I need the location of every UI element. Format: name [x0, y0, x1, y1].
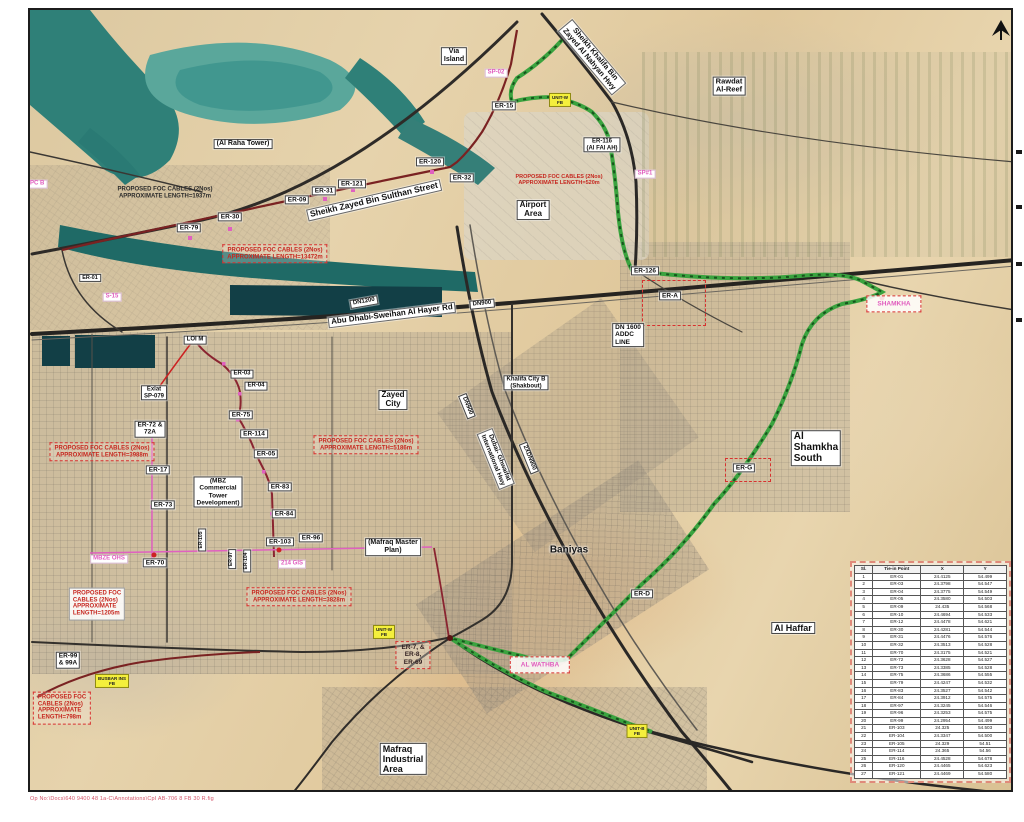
label-mafraq-master-plan: (Mafraq Master Plan): [365, 538, 421, 556]
table-cell: 5: [855, 603, 873, 611]
table-cell: 24.325: [921, 725, 964, 733]
callout-foc-1205: PROPOSED FOC CABLES (2Nos) APPROXIMATE L…: [69, 588, 125, 621]
table-cell: 24.4125: [921, 573, 964, 581]
table-cell: ER-03: [873, 581, 921, 589]
table-cell: ER-96: [873, 710, 921, 718]
table-row: 6ER-1024.469454.533: [855, 611, 1007, 619]
table-cell: 54.533: [964, 611, 1007, 619]
label-s-15: S-15: [103, 293, 122, 302]
label-al-wathba: AL WATHBA: [510, 656, 570, 673]
label-khalifa-city-b: Khalifa City B (Shakbout): [503, 375, 548, 390]
table-cell: 24.3798: [921, 581, 964, 589]
table-cell: 54.503: [964, 596, 1007, 604]
table-cell: 13: [855, 664, 873, 672]
table-row: 27ER-12124.446954.580: [855, 771, 1007, 779]
table-cell: 1: [855, 573, 873, 581]
label-er-09: ER-09: [285, 195, 309, 204]
label-er-75: ER-75: [229, 410, 253, 419]
table-row: 9ER-3124.447654.576: [855, 634, 1007, 642]
label-al-haffar: Al Haffar: [771, 622, 815, 634]
label-er-126: ER-126: [631, 266, 659, 275]
table-row: 4ER-0524.358054.503: [855, 596, 1007, 604]
label-loi-m: LOI M: [184, 336, 207, 345]
tie-in-point-markers: [150, 70, 885, 641]
table-row: 23ER-10524.32954.51: [855, 740, 1007, 748]
table-cell: ER-97: [873, 702, 921, 710]
label-dn1600-addc: DN 1600 ADDC LINE: [612, 323, 644, 347]
table-row: 19ER-9624.325354.575: [855, 710, 1007, 718]
table-cell: 54.56: [964, 748, 1007, 756]
table-row: 10ER-3224.351354.528: [855, 641, 1007, 649]
label-upc-b: UPC B: [28, 180, 47, 189]
label-rawdat-al-reef: Rawdat Al-Reef: [713, 77, 746, 96]
table-cell: 10: [855, 641, 873, 649]
table-cell: 24.4528: [921, 755, 964, 763]
table-cell: 6: [855, 611, 873, 619]
label-er-99: ER-99 & 99A: [56, 652, 80, 669]
table-row: 11ER-7024.317554.521: [855, 649, 1007, 657]
tie-in-point-table: Sl.Tie-in PointXY 1ER-0124.412554.4992ER…: [850, 561, 1011, 783]
satellite-map: ER-15ER-116 (Al FAl AH)ER-120ER-121ER-32…: [28, 8, 1013, 792]
table-cell: 12: [855, 657, 873, 665]
table-cell: 9: [855, 634, 873, 642]
label-exlat-sp079: Exlat SP-079: [141, 385, 167, 400]
table-cell: 8: [855, 626, 873, 634]
margin-tick: [1016, 150, 1022, 154]
table-cell: 54.568: [964, 603, 1007, 611]
callout-foc-3988: PROPOSED FOC CABLES (2Nos) APPROXIMATE L…: [49, 442, 154, 461]
label-sp-1: SP#1: [635, 170, 656, 179]
label-er-70: ER-70: [143, 558, 167, 567]
table-row: 25ER-11624.452854.678: [855, 755, 1007, 763]
label-er-72: ER-72 & 72A: [135, 421, 166, 438]
label-mbze-ohs: MBZE OHS: [90, 555, 128, 564]
table-header-1: Tie-in Point: [873, 566, 921, 574]
table-cell: 17: [855, 695, 873, 703]
margin-tick: [1016, 318, 1022, 322]
label-er-97: ER-97: [228, 549, 236, 569]
label-er-d: ER-D: [631, 589, 653, 598]
table-row: 14ER-7524.368654.555: [855, 672, 1007, 680]
table-cell: ER-05: [873, 596, 921, 604]
label-er-30: ER-30: [218, 212, 242, 221]
table-header-2: X: [921, 566, 964, 574]
label-er-104: ER-104: [243, 550, 251, 573]
label-er-114: ER-114: [240, 429, 268, 438]
table-cell: 54.580: [964, 771, 1007, 779]
table-cell: 54.555: [964, 672, 1007, 680]
label-er-a: ER-A: [659, 291, 681, 300]
label-er-32: ER-32: [450, 173, 474, 182]
callout-foc-13472: PROPOSED FOC CABLES (2Nos) APPROXIMATE L…: [222, 244, 327, 263]
map-sheet: ER-15ER-116 (Al FAl AH)ER-120ER-121ER-32…: [0, 0, 1024, 822]
table-cell: 54.621: [964, 619, 1007, 627]
table-cell: 24.3686: [921, 672, 964, 680]
label-er-05: ER-05: [254, 449, 278, 458]
table-row: 21ER-10324.32554.503: [855, 725, 1007, 733]
label-shamkha: SHAMKHA: [866, 295, 921, 312]
label-via-island: Via Island: [441, 47, 467, 65]
table-cell: 24.4247: [921, 679, 964, 687]
highlight-zone-er-a: [642, 280, 706, 326]
callout-er7-group: ER-7, & ER-8, ER-69: [395, 641, 430, 669]
table-cell: 24.3527: [921, 687, 964, 695]
label-mafraq-industrial: Mafraq Industrial Area: [380, 743, 427, 775]
table-cell: ER-72: [873, 657, 921, 665]
label-er-121: ER-121: [338, 179, 366, 188]
table-cell: 24.3245: [921, 702, 964, 710]
table-cell: 24.365: [921, 748, 964, 756]
label-er-120: ER-120: [416, 157, 444, 166]
table-row: 5ER-0924.43554.568: [855, 603, 1007, 611]
table-cell: 24.3175: [921, 649, 964, 657]
table-cell: 14: [855, 672, 873, 680]
table-cell: 54.546: [964, 702, 1007, 710]
label-er-15: ER-15: [492, 101, 516, 110]
table-cell: ER-04: [873, 588, 921, 596]
table-cell: 24: [855, 748, 873, 756]
table-cell: 24.3628: [921, 657, 964, 665]
table-cell: 4: [855, 596, 873, 604]
table-cell: 24.3347: [921, 733, 964, 741]
table-cell: ER-31: [873, 634, 921, 642]
table-cell: 27: [855, 771, 873, 779]
table-cell: 24.3580: [921, 596, 964, 604]
table-cell: 54.532: [964, 679, 1007, 687]
table-cell: ER-83: [873, 687, 921, 695]
table-cell: 24.4478: [921, 619, 964, 627]
table-cell: 24.329: [921, 740, 964, 748]
table-cell: ER-103: [873, 725, 921, 733]
table-cell: ER-75: [873, 672, 921, 680]
table-header-0: Sl.: [855, 566, 873, 574]
table-cell: 24.4694: [921, 611, 964, 619]
table-cell: 21: [855, 725, 873, 733]
table-cell: 54.575: [964, 695, 1007, 703]
table-cell: ER-01: [873, 573, 921, 581]
table-cell: 54.528: [964, 641, 1007, 649]
label-er-84: ER-84: [272, 509, 296, 518]
table-cell: 24.2954: [921, 717, 964, 725]
table-cell: 24.3912: [921, 695, 964, 703]
label-er-83: ER-83: [268, 482, 292, 491]
table-cell: ER-73: [873, 664, 921, 672]
table-cell: 24.3253: [921, 710, 964, 718]
north-arrow-icon: [992, 20, 1010, 40]
label-er-04: ER-04: [244, 382, 267, 391]
margin-tick: [1016, 205, 1022, 209]
table-cell: 24.3385: [921, 664, 964, 672]
table-cell: ER-105: [873, 740, 921, 748]
table-row: 24ER-11424.36554.56: [855, 748, 1007, 756]
table-cell: ER-79: [873, 679, 921, 687]
label-er-01: ER-01: [79, 274, 101, 282]
table-row: 2ER-0324.379854.547: [855, 581, 1007, 589]
label-er-03: ER-03: [230, 370, 253, 379]
table-cell: 24.4476: [921, 634, 964, 642]
label-er-g: ER-G: [733, 463, 755, 472]
table-cell: 54.623: [964, 763, 1007, 771]
label-er-105: ER-105: [198, 529, 206, 552]
table-cell: ER-32: [873, 641, 921, 649]
callout-foc-3828: PROPOSED FOC CABLES (2Nos) APPROXIMATE L…: [246, 587, 351, 606]
table-row: 17ER-8424.391254.575: [855, 695, 1007, 703]
table-cell: 54.575: [964, 710, 1007, 718]
callout-foc-798: PROPOSED FOC CABLES (2Nos) APPROXIMATE L…: [33, 692, 91, 725]
label-al-raha-tower: (Al Raha Tower): [214, 139, 273, 149]
table-row: 26ER-12024.446554.623: [855, 763, 1007, 771]
table-cell: ER-120: [873, 763, 921, 771]
label-er-103: ER-103: [266, 537, 294, 546]
table-cell: 20: [855, 717, 873, 725]
table-cell: ER-99: [873, 717, 921, 725]
table-cell: 54.499: [964, 717, 1007, 725]
label-er-79: ER-79: [177, 223, 201, 232]
table-header-3: Y: [964, 566, 1007, 574]
table-cell: 3: [855, 588, 873, 596]
label-airport-area: Airport Area: [517, 200, 550, 220]
table-cell: 54.51: [964, 740, 1007, 748]
table-cell: ER-70: [873, 649, 921, 657]
table-row: 1ER-0124.412554.499: [855, 573, 1007, 581]
table-cell: ER-09: [873, 603, 921, 611]
label-mbz-commercial: (MBZ Commercial Tower Development): [194, 476, 243, 507]
callout-foc-520: PROPOSED FOC CABLES (2Nos) APPROXIMATE L…: [515, 174, 602, 186]
table-cell: 54.521: [964, 649, 1007, 657]
label-unit-b: UNIT-B FB: [627, 724, 648, 738]
table-cell: 24.3775: [921, 588, 964, 596]
callout-foc-5186: PROPOSED FOC CABLES (2Nos) APPROXIMATE L…: [313, 435, 418, 454]
table-cell: 54.547: [964, 581, 1007, 589]
table-cell: 24.3513: [921, 641, 964, 649]
table-cell: ER-104: [873, 733, 921, 741]
table-cell: ER-12: [873, 619, 921, 627]
table-cell: 16: [855, 687, 873, 695]
label-al-shamkha-south: Al Shamkha South: [791, 430, 841, 466]
table-cell: ER-121: [873, 771, 921, 779]
label-er-116: ER-116 (Al FAl AH): [583, 137, 620, 152]
label-unit-w-north: UNIT-W FB: [549, 93, 571, 107]
label-busbar-fb: BUSBAR INS FB: [95, 674, 129, 688]
table-cell: 15: [855, 679, 873, 687]
table-cell: 54.542: [964, 687, 1007, 695]
table-cell: 54.549: [964, 588, 1007, 596]
table-row: 22ER-10424.334754.500: [855, 733, 1007, 741]
margin-tick: [1016, 262, 1022, 266]
table-cell: 54.576: [964, 634, 1007, 642]
label-er-17: ER-17: [146, 465, 170, 474]
table-row: 3ER-0424.377554.549: [855, 588, 1007, 596]
table-cell: 25: [855, 755, 873, 763]
label-er-31: ER-31: [312, 186, 336, 195]
table-cell: 2: [855, 581, 873, 589]
table-cell: ER-30: [873, 626, 921, 634]
callout-foc-1937: PROPOSED FOC CABLES (2Nos) APPROXIMATE L…: [117, 186, 212, 199]
label-baniyas: Baniyas: [550, 544, 588, 555]
table-cell: ER-114: [873, 748, 921, 756]
table-row: 15ER-7924.424754.532: [855, 679, 1007, 687]
table-cell: 24.4469: [921, 771, 964, 779]
table-cell: 18: [855, 702, 873, 710]
table-cell: 23: [855, 740, 873, 748]
table-row: 20ER-9924.295454.499: [855, 717, 1007, 725]
table-cell: ER-84: [873, 695, 921, 703]
table-cell: 19: [855, 710, 873, 718]
drawing-caption: Op No:\Docs\640 9400 48 1a-C\Annotations…: [30, 796, 214, 802]
table-cell: 24.435: [921, 603, 964, 611]
label-sp-02: SP-02: [485, 69, 508, 78]
label-er-73: ER-73: [151, 500, 175, 509]
table-cell: 22: [855, 733, 873, 741]
label-zayed-city: Zayed City: [378, 390, 407, 410]
table-cell: 54.678: [964, 755, 1007, 763]
table-cell: 24.4465: [921, 763, 964, 771]
table-cell: 54.528: [964, 664, 1007, 672]
table-row: 13ER-7324.338554.528: [855, 664, 1007, 672]
label-er-96: ER-96: [299, 533, 323, 542]
table-cell: ER-116: [873, 755, 921, 763]
table-cell: 11: [855, 649, 873, 657]
table-row: 18ER-9724.324554.546: [855, 702, 1007, 710]
table-cell: 7: [855, 619, 873, 627]
table-row: 12ER-7224.362854.527: [855, 657, 1007, 665]
table-row: 7ER-1224.447854.621: [855, 619, 1007, 627]
table-cell: 54.527: [964, 657, 1007, 665]
table-cell: 54.500: [964, 733, 1007, 741]
table-cell: 54.503: [964, 725, 1007, 733]
label-214-gis: 214 GIS: [278, 560, 306, 569]
table-cell: 26: [855, 763, 873, 771]
table-row: 16ER-8324.352754.542: [855, 687, 1007, 695]
table-row: 8ER-3024.428154.544: [855, 626, 1007, 634]
table-cell: ER-10: [873, 611, 921, 619]
table-cell: 24.4281: [921, 626, 964, 634]
table-cell: 54.544: [964, 626, 1007, 634]
table-cell: 54.499: [964, 573, 1007, 581]
label-unit-w-mafraq: UNIT-W FB: [373, 625, 395, 639]
